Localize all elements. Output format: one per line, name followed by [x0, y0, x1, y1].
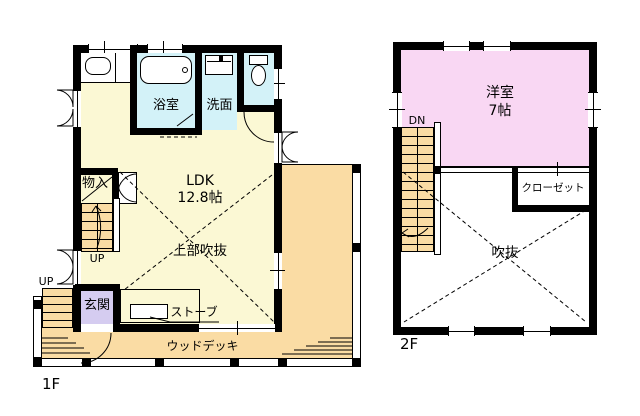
ldk-name-label: LDK [150, 174, 250, 189]
deck-railing-right [352, 164, 361, 367]
door-leaf [118, 172, 137, 204]
window [448, 326, 475, 336]
kitchen-sink-icon [85, 57, 111, 75]
window [483, 41, 511, 51]
toilet-tank-icon [249, 55, 268, 65]
toilet-bowl-icon [251, 65, 266, 86]
void-label: 吹抜 [465, 246, 545, 260]
wall-segment [113, 284, 120, 324]
window-tick [237, 321, 238, 335]
floor-plan: 浴室 洗面 物入 UP 玄関 UP ストーブ LDK 12.8帖 上部吹抜 ウッ… [0, 0, 640, 416]
window [274, 252, 282, 290]
floor1-label: 1F [42, 377, 72, 393]
stairs-2f [401, 127, 434, 252]
deck-post [155, 358, 164, 367]
deck-post [82, 358, 91, 367]
faucet-icon [219, 56, 223, 61]
ldk-size-label: 12.8帖 [150, 191, 250, 206]
deck-edge-line [282, 164, 361, 165]
floor2-label: 2F [400, 337, 430, 353]
window-tick [585, 109, 601, 110]
stairs-1f [81, 203, 113, 252]
bathtub-drain [182, 67, 188, 73]
porch-up-label: UP [34, 276, 58, 288]
closet-label: クローゼット [515, 183, 591, 194]
window [274, 132, 282, 164]
wall-segment [130, 45, 137, 135]
western-room-name-label: 洋室 [450, 86, 550, 101]
storage-label: 物入 [78, 177, 112, 191]
entrance-label: 玄関 [81, 299, 113, 313]
counter-divider [115, 53, 116, 83]
deck-post [230, 358, 239, 367]
stairs-down-label: DN [404, 115, 430, 127]
deck-post [352, 164, 361, 173]
window-tick [389, 109, 405, 110]
window [392, 92, 402, 128]
stove-label: ストーブ [168, 306, 220, 319]
entrance-doorway [81, 324, 113, 332]
wall-segment [434, 166, 441, 174]
wall-segment [130, 128, 202, 135]
window-tick [270, 270, 285, 271]
wall-segment [237, 45, 244, 112]
wall-segment [512, 205, 597, 212]
window [523, 326, 551, 336]
window [73, 90, 81, 128]
stair-rail [434, 122, 441, 255]
wall-segment [237, 105, 274, 112]
wood-deck-label: ウッドデッキ [150, 340, 255, 353]
deck-post [352, 243, 361, 252]
stove-icon [130, 304, 168, 319]
western-room-size-label: 7帖 [450, 104, 550, 119]
wall-segment [195, 45, 202, 135]
window [588, 92, 598, 128]
deck-post [278, 358, 287, 367]
window [443, 41, 470, 51]
stairs-up-label: UP [81, 253, 113, 265]
deck-post [33, 358, 42, 367]
wall-segment [73, 168, 118, 175]
window [73, 250, 81, 286]
deck-post [352, 358, 361, 367]
upper-void-label: 上部吹抜 [145, 244, 255, 258]
bath-label: 浴室 [137, 99, 195, 113]
window-tick [557, 162, 558, 176]
porch-steps [42, 288, 73, 328]
washroom-label: 洗面 [202, 99, 237, 113]
window [274, 68, 282, 100]
stair-rail [113, 198, 120, 252]
deck-post [33, 300, 42, 309]
washbasin-line [207, 61, 231, 62]
